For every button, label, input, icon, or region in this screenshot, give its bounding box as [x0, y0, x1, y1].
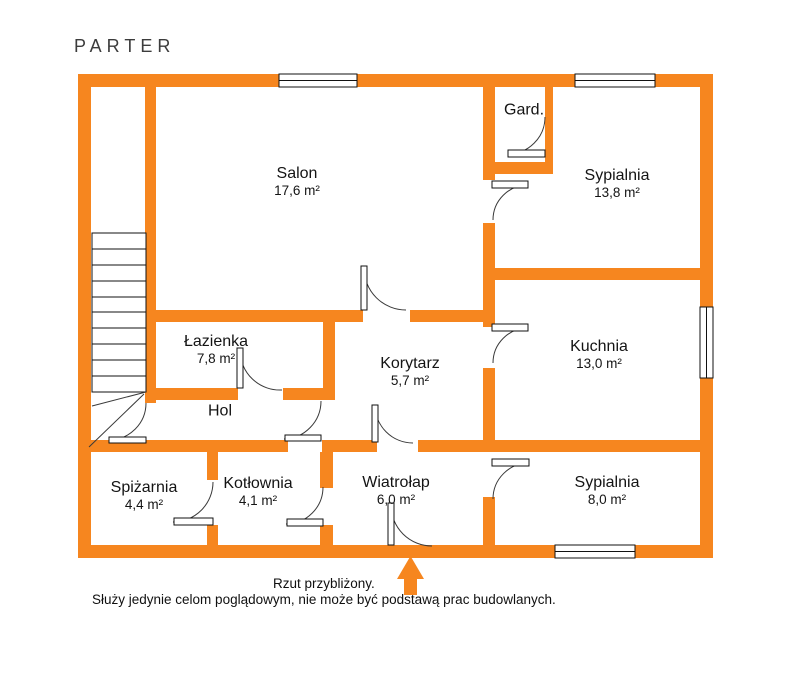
room-area: 13,0 m²	[570, 356, 628, 371]
room-name: Kuchnia	[570, 337, 628, 356]
stair-break-line	[92, 392, 146, 406]
wall-segment	[145, 87, 156, 403]
door-salon	[361, 266, 406, 310]
room-name: Gard.	[504, 101, 544, 120]
entrance-arrow-icon	[397, 556, 424, 595]
door-sypialnia-top	[492, 181, 528, 220]
door-sypialnia-bottom	[492, 459, 529, 499]
wall-segment	[418, 440, 713, 452]
room-label-salon: Salon 17,6 m²	[274, 164, 320, 198]
room-name: Sypialnia	[575, 473, 640, 492]
wall-segment	[145, 310, 363, 322]
room-name: Wiatrołap	[362, 473, 430, 492]
door-entrance	[388, 503, 432, 546]
wall-segment	[145, 388, 238, 400]
room-area: 17,6 m²	[274, 183, 320, 198]
room-label-garderoba: Gard.	[504, 101, 544, 120]
wall-segment	[322, 440, 377, 452]
staircase	[89, 233, 146, 447]
wall-segment	[207, 452, 218, 480]
room-name: Korytarz	[380, 354, 440, 373]
room-label-korytarz: Korytarz 5,7 m²	[380, 354, 440, 388]
room-label-wiatrolap: Wiatrołap 6,0 m²	[362, 473, 430, 507]
room-area: 13,8 m²	[585, 185, 650, 200]
wall-segment	[483, 368, 495, 452]
room-area: 8,0 m²	[575, 492, 640, 507]
room-label-spizarnia: Spiżarnia 4,4 m²	[111, 478, 178, 512]
room-label-hol: Hol	[208, 402, 232, 421]
floor-plan-page: PARTER	[0, 0, 798, 679]
room-name: Hol	[208, 402, 232, 421]
wall-segment	[545, 87, 553, 174]
window-right	[700, 307, 713, 378]
room-area: 6,0 m²	[362, 492, 430, 507]
room-area: 4,1 m²	[223, 493, 292, 508]
footer-note-line2: Służy jedynie celom poglądowym, nie może…	[92, 592, 556, 607]
room-name: Sypialnia	[585, 166, 650, 185]
room-area: 7,8 m²	[184, 351, 248, 366]
room-area: 5,7 m²	[380, 373, 440, 388]
room-name: Kotłownia	[223, 474, 292, 493]
window-top-left	[279, 74, 357, 87]
floor-plan-drawing	[0, 0, 798, 679]
door-spizarnia	[173, 482, 213, 525]
wall-segment	[483, 497, 495, 545]
wall-segment	[320, 452, 333, 488]
window-top-right	[575, 74, 655, 87]
footer-note-line1: Rzut przybliżony.	[273, 576, 375, 591]
door-korytarz-wiatrolap	[372, 405, 413, 443]
room-name: Salon	[274, 164, 320, 183]
wall-segment	[483, 268, 713, 280]
wall-segment	[410, 310, 485, 322]
wall-segment	[320, 525, 333, 545]
wall-segment	[78, 74, 91, 558]
room-label-kotlownia: Kotłownia 4,1 m²	[223, 474, 292, 508]
room-area: 4,4 m²	[111, 497, 178, 512]
wall-segment	[483, 162, 552, 174]
wall-segment	[283, 388, 335, 400]
door-garderoba	[508, 117, 545, 157]
room-name: Łazienka	[184, 332, 248, 351]
window-bottom	[555, 545, 635, 558]
room-name: Spiżarnia	[111, 478, 178, 497]
wall-segment	[207, 525, 218, 545]
room-label-sypialnia-bottom: Sypialnia 8,0 m²	[575, 473, 640, 507]
door-kuchnia	[492, 324, 528, 363]
door-hol-kotlownia	[284, 401, 321, 441]
room-label-sypialnia-top: Sypialnia 13,8 m²	[585, 166, 650, 200]
room-label-kuchnia: Kuchnia 13,0 m²	[570, 337, 628, 371]
room-label-lazienka: Łazienka 7,8 m²	[184, 332, 248, 366]
